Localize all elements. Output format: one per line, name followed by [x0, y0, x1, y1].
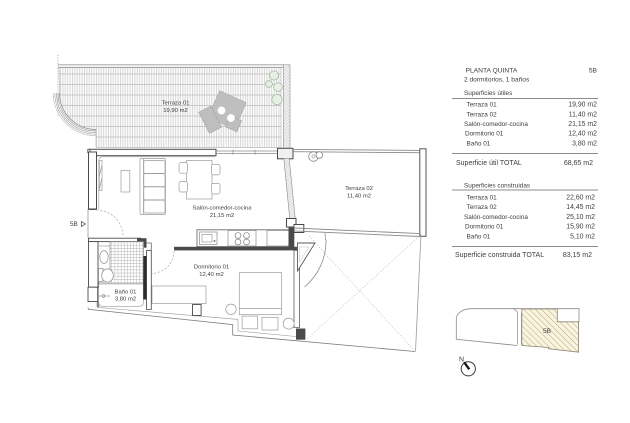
svg-text:12,40 m2: 12,40 m2 [199, 272, 224, 278]
svg-text:Superficie construida TOTAL: Superficie construida TOTAL [455, 252, 544, 259]
svg-text:19,90 m2: 19,90 m2 [568, 102, 597, 109]
svg-text:Superficies útiles: Superficies útiles [464, 90, 512, 97]
svg-text:11,40 m2: 11,40 m2 [347, 194, 371, 200]
svg-text:Salón-comedor-cocina: Salón-comedor-cocina [193, 206, 253, 212]
svg-text:12,40 m2: 12,40 m2 [568, 131, 597, 138]
svg-text:N: N [459, 357, 464, 364]
svg-text:Baño 01: Baño 01 [467, 140, 491, 147]
svg-text:Salón-comedor-cocina: Salón-comedor-cocina [464, 121, 528, 128]
svg-text:Terraza 01: Terraza 01 [467, 102, 498, 109]
svg-text:25,10 m2: 25,10 m2 [566, 214, 595, 221]
svg-text:3,80 m2: 3,80 m2 [572, 140, 597, 147]
svg-text:22,60 m2: 22,60 m2 [566, 195, 595, 202]
svg-text:19,90 m2: 19,90 m2 [163, 108, 188, 114]
svg-text:Terraza 02: Terraza 02 [467, 204, 498, 211]
svg-text:5B: 5B [543, 328, 552, 335]
svg-text:68,65 m2: 68,65 m2 [564, 160, 593, 167]
svg-text:14,45 m2: 14,45 m2 [566, 204, 595, 211]
svg-text:21,15 m2: 21,15 m2 [210, 213, 235, 219]
svg-text:Baño 01: Baño 01 [115, 290, 137, 296]
svg-text:21,15 m2: 21,15 m2 [568, 121, 597, 128]
svg-text:Dormitorio 01: Dormitorio 01 [194, 265, 229, 271]
svg-text:Salón-comedor-cocina: Salón-comedor-cocina [464, 214, 528, 221]
svg-text:Terraza 02: Terraza 02 [467, 111, 498, 118]
svg-text:Terraza 01: Terraza 01 [467, 195, 498, 202]
svg-text:Superficies construidas: Superficies construidas [464, 183, 530, 190]
svg-text:83,15 m2: 83,15 m2 [563, 252, 592, 259]
svg-text:5B: 5B [70, 221, 78, 228]
svg-text:Terraza 02: Terraza 02 [345, 186, 373, 192]
svg-text:5B: 5B [589, 68, 598, 75]
svg-text:Dormitorio 01: Dormitorio 01 [465, 131, 504, 138]
svg-text:3,80 m2: 3,80 m2 [115, 297, 136, 303]
svg-text:PLANTA QUINTA: PLANTA QUINTA [466, 68, 518, 75]
svg-text:15,90 m2: 15,90 m2 [566, 224, 595, 231]
svg-text:5,10 m2: 5,10 m2 [570, 233, 595, 240]
svg-text:Baño 01: Baño 01 [467, 233, 491, 240]
svg-text:Terraza 01: Terraza 01 [162, 101, 190, 107]
svg-text:2 dormitorios, 1 baños: 2 dormitorios, 1 baños [464, 76, 530, 83]
svg-text:11,40 m2: 11,40 m2 [569, 111, 597, 118]
svg-text:Dormitorio 01: Dormitorio 01 [465, 224, 504, 231]
svg-text:Superficie útil TOTAL: Superficie útil TOTAL [456, 160, 522, 167]
